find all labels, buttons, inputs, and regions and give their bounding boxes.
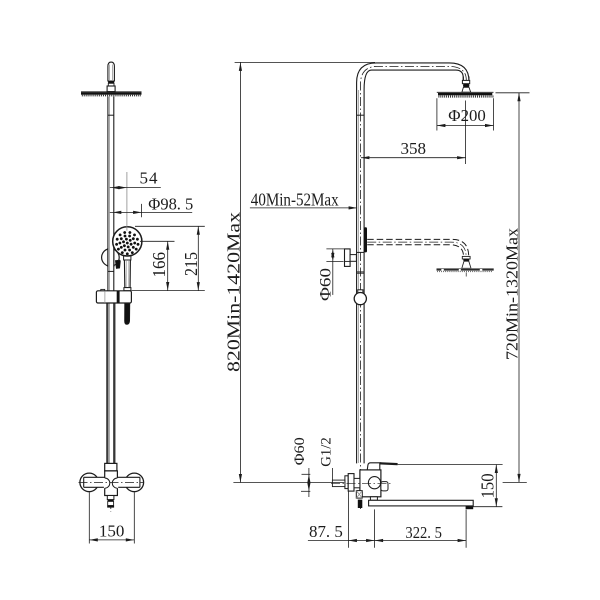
svg-text:54: 54 — [140, 169, 159, 188]
svg-text:Φ60: Φ60 — [292, 437, 308, 465]
svg-text:40Min-52Max: 40Min-52Max — [251, 190, 339, 210]
svg-text:150: 150 — [478, 473, 498, 498]
svg-text:358: 358 — [400, 139, 426, 158]
svg-text:166: 166 — [149, 252, 169, 278]
svg-text:Φ200: Φ200 — [448, 106, 486, 125]
svg-text:720Min-1320Max: 720Min-1320Max — [503, 227, 522, 360]
svg-text:322. 5: 322. 5 — [405, 523, 442, 542]
svg-text:820Min-1420Max: 820Min-1420Max — [224, 212, 244, 372]
svg-text:G1/2: G1/2 — [318, 437, 334, 466]
svg-text:215: 215 — [181, 252, 201, 276]
svg-text:Φ98. 5: Φ98. 5 — [148, 194, 193, 213]
svg-text:Φ60: Φ60 — [317, 268, 334, 301]
svg-text:87. 5: 87. 5 — [309, 522, 343, 541]
svg-text:150: 150 — [99, 522, 125, 541]
